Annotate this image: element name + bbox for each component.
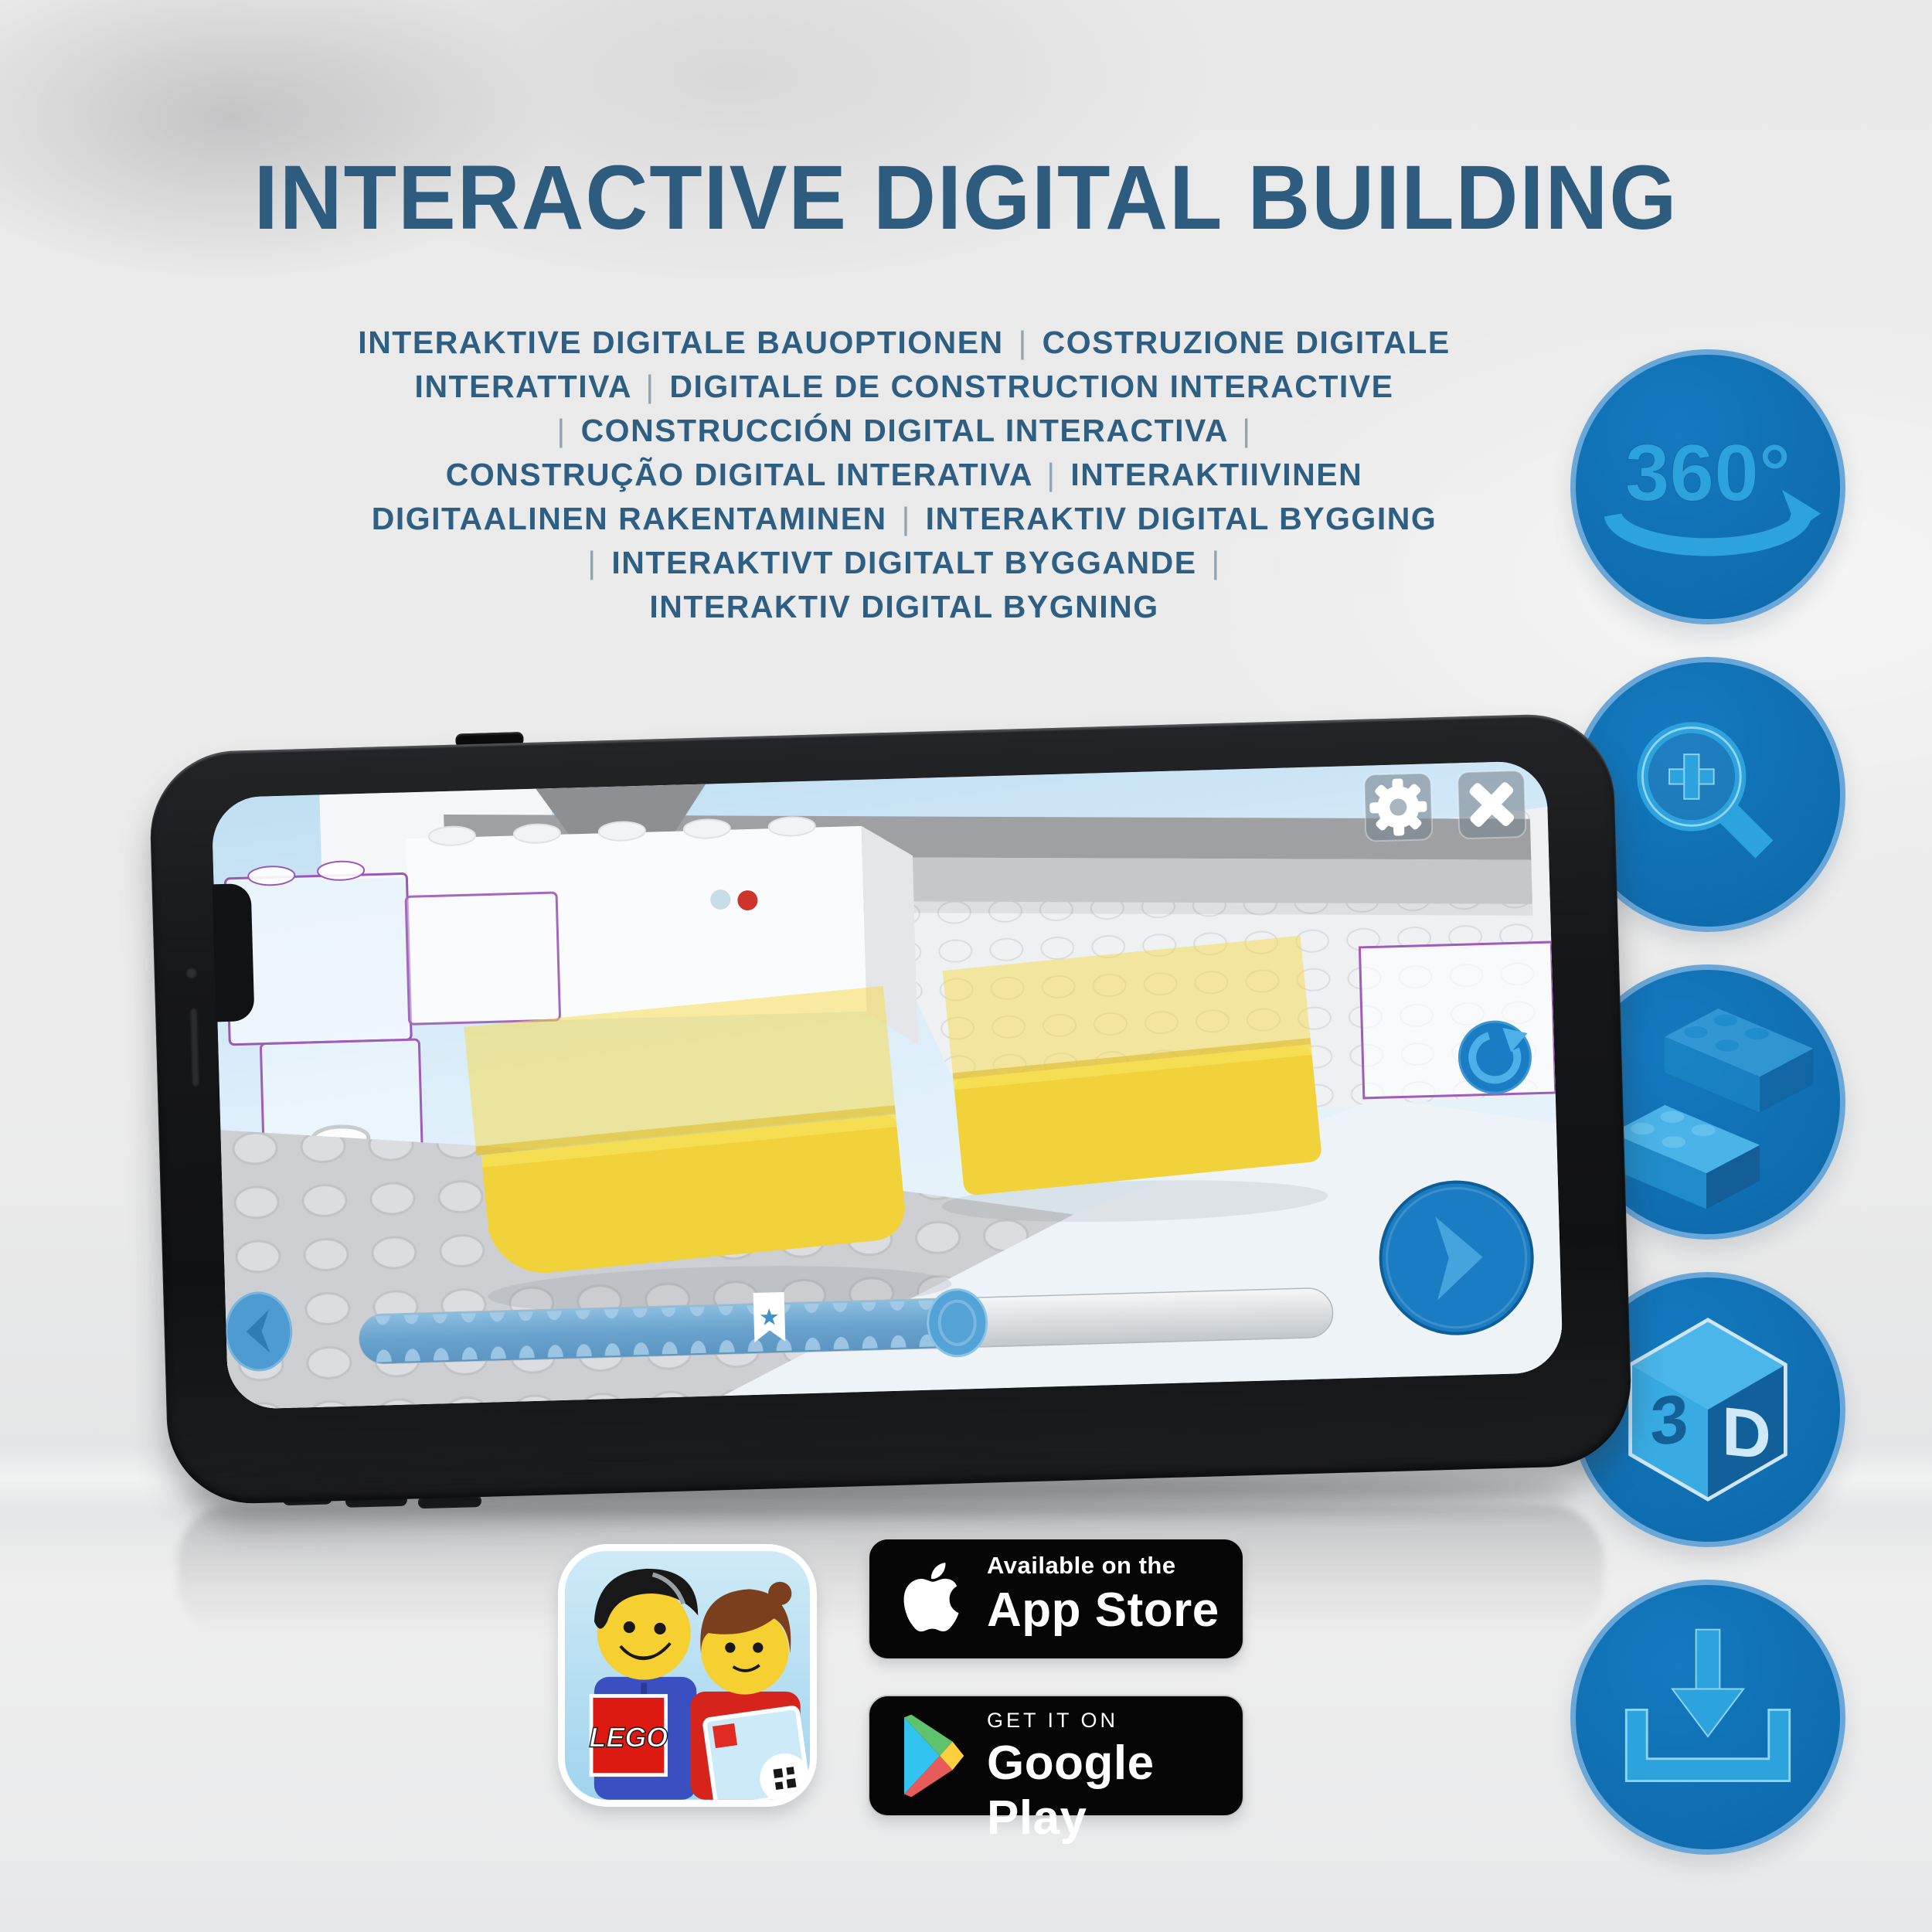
- next-step-button[interactable]: [1379, 1180, 1534, 1335]
- subtitle-line: CONSTRUÇÃO DIGITAL INTERATIVA | INTERAKT…: [170, 453, 1638, 497]
- subtitle-line: DIGITAALINEN RAKENTAMINEN | INTERAKTIV D…: [170, 497, 1638, 541]
- previous-step-button[interactable]: [225, 1292, 292, 1371]
- star-icon: ★: [759, 1304, 781, 1331]
- subtitle-line: | INTERAKTIVT DIGITALT BYGGANDE |: [170, 541, 1638, 585]
- google-play-badge[interactable]: GET IT ON Google Play: [868, 1695, 1244, 1817]
- 360-label: 360°: [1625, 427, 1791, 517]
- subtitle-line: | CONSTRUCCIÓN DIGITAL INTERACTIVA |: [170, 409, 1638, 453]
- lego-app-icon[interactable]: LEGO: [558, 1544, 817, 1807]
- app-store-name: App Store: [987, 1583, 1235, 1638]
- google-play-name: Google Play: [987, 1736, 1235, 1845]
- 3d-right-label: D: [1722, 1393, 1771, 1474]
- building-scene: ★: [211, 760, 1563, 1410]
- progress-handle[interactable]: [927, 1289, 988, 1357]
- yellow-bed-right: [943, 936, 1322, 1196]
- app-screen: ★: [211, 760, 1563, 1410]
- reset-rotation-button[interactable]: [1458, 1021, 1532, 1094]
- 360-rotation-icon: 360°: [1576, 355, 1840, 619]
- lego-logo: LEGO: [589, 1696, 668, 1774]
- yellow-bed-left: [464, 986, 907, 1279]
- lego-app-art: LEGO: [565, 1551, 810, 1800]
- 3d-left-label: 3: [1650, 1379, 1688, 1460]
- subtitle-line: INTERAKTIV DIGITAL BYGNING: [170, 585, 1638, 629]
- phone-mockup: ★: [148, 713, 1633, 1506]
- app-store-tagline: Available on the: [987, 1552, 1235, 1580]
- subtitle-line: INTERAKTIVE DIGITALE BAUOPTIONEN | COSTR…: [170, 321, 1638, 365]
- svg-text:LEGO: LEGO: [589, 1722, 668, 1753]
- download-icon: [1576, 1585, 1840, 1849]
- close-button[interactable]: [1458, 770, 1526, 838]
- subtitle-block: INTERAKTIVE DIGITALE BAUOPTIONEN | COSTR…: [170, 321, 1638, 629]
- apple-icon: [896, 1550, 967, 1648]
- app-store-badge[interactable]: Available on the App Store: [868, 1538, 1244, 1660]
- phone-notch: [213, 883, 255, 1022]
- google-play-tagline: GET IT ON: [987, 1709, 1235, 1733]
- subtitle-line: INTERATTIVA | DIGITALE DE CONSTRUCTION I…: [170, 365, 1638, 409]
- google-play-icon: [896, 1707, 967, 1804]
- feature-download: [1570, 1580, 1845, 1855]
- feature-360-rotation: 360°: [1570, 349, 1845, 624]
- settings-button[interactable]: [1364, 773, 1432, 841]
- page-title: INTERACTIVE DIGITAL BUILDING: [49, 145, 1884, 250]
